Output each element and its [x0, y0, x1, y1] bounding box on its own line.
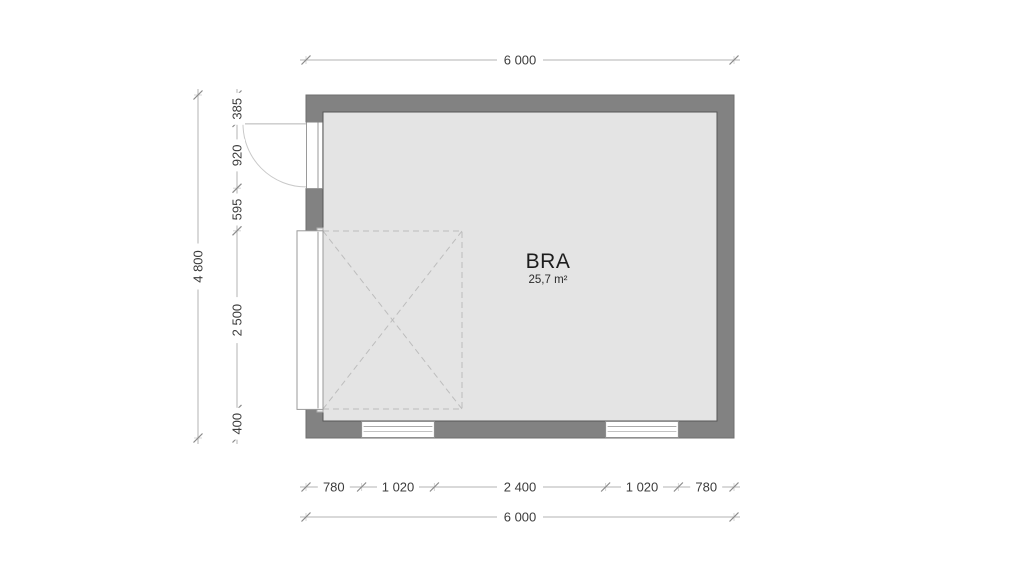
dimension-left-chain: 385 920 595 2 500 400: [229, 89, 245, 444]
room-name: BRA: [526, 250, 571, 273]
door-opening: [305, 123, 324, 189]
building: [306, 95, 734, 438]
dim-label-780-left: 780: [323, 480, 345, 495]
dim-label-1020-right: 1 020: [626, 480, 659, 495]
dimension-bottom-total: 6 000: [300, 509, 740, 525]
door-swing-arc: [243, 124, 306, 187]
dim-label-385: 385: [230, 98, 245, 120]
floor-plan-drawing: BRA 25,7 m² 6 000 4 800: [0, 0, 1024, 576]
dim-label-height-total: 4 800: [191, 250, 206, 283]
window-left-frame: [362, 422, 435, 438]
dim-label-width-total-bottom: 6 000: [504, 510, 537, 525]
garage-opening-frame: [297, 231, 323, 410]
dim-label-400: 400: [230, 413, 245, 435]
dimension-bottom-chain: 780 1 020 2 400 1 020 780: [300, 479, 740, 495]
door: [243, 123, 323, 189]
dim-label-2400: 2 400: [504, 480, 537, 495]
dim-label-920: 920: [230, 145, 245, 167]
dimension-left-total: 4 800: [190, 89, 206, 444]
dim-label-595: 595: [230, 199, 245, 221]
dim-label-width-total: 6 000: [504, 53, 537, 68]
dim-label-1020-left: 1 020: [382, 480, 415, 495]
room-area: 25,7 m²: [529, 274, 568, 286]
floor: [323, 112, 717, 421]
room-label: BRA 25,7 m²: [526, 250, 571, 286]
garage-opening: [297, 231, 323, 410]
floor-plan-page: BRA 25,7 m² 6 000 4 800: [0, 0, 1024, 576]
dim-label-780-right: 780: [695, 480, 717, 495]
dim-label-2500: 2 500: [230, 304, 245, 337]
window-left: [362, 422, 435, 438]
dimension-top: 6 000: [300, 52, 740, 68]
window-right: [606, 422, 679, 438]
window-right-frame: [606, 422, 679, 438]
